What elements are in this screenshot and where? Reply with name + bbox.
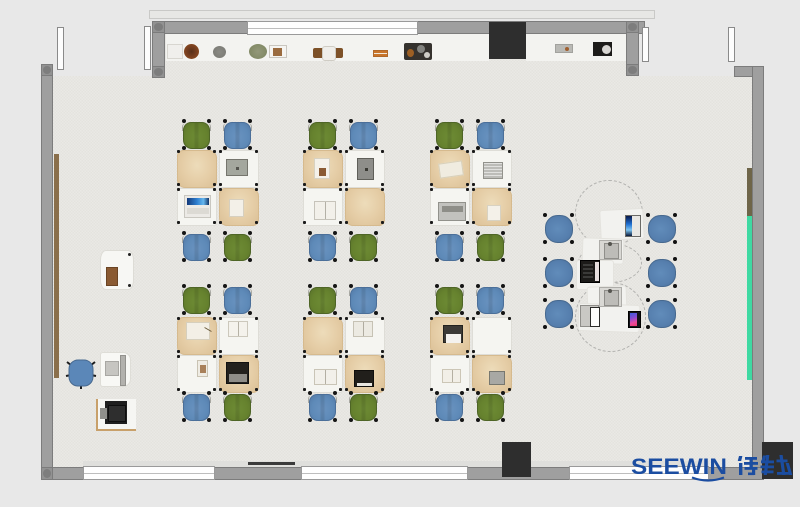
svg-text:SEEWIN: SEEWIN bbox=[631, 454, 727, 479]
